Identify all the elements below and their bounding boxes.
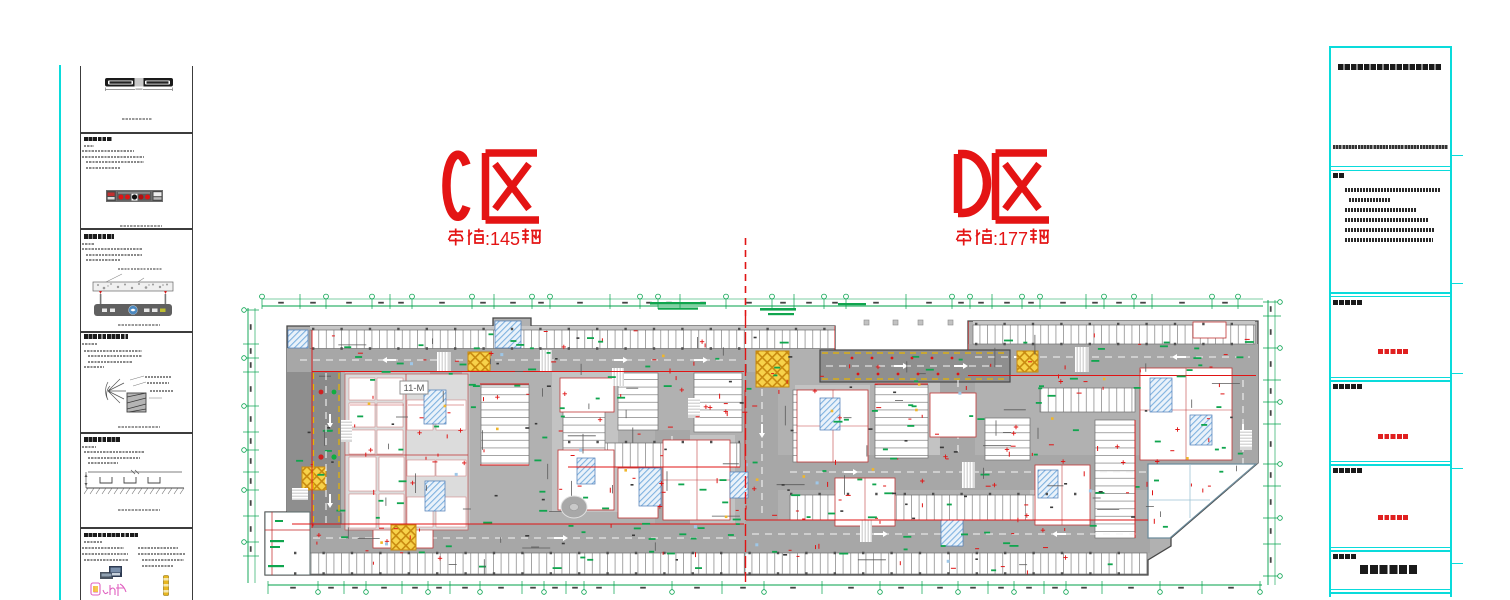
svg-text::145: :145 xyxy=(485,229,520,249)
svg-text::177: :177 xyxy=(993,229,1028,249)
svg-text:11-M: 11-M xyxy=(404,383,425,394)
